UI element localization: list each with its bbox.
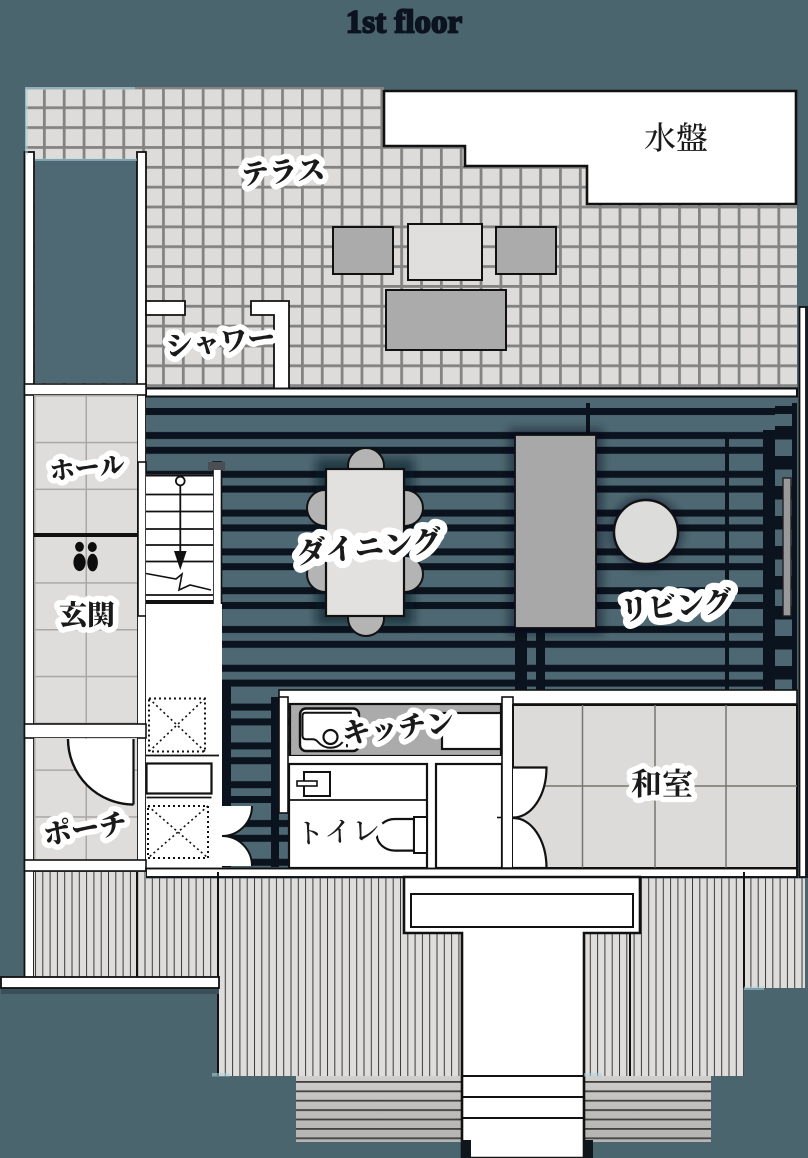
svg-text:1st floor: 1st floor — [346, 5, 462, 41]
